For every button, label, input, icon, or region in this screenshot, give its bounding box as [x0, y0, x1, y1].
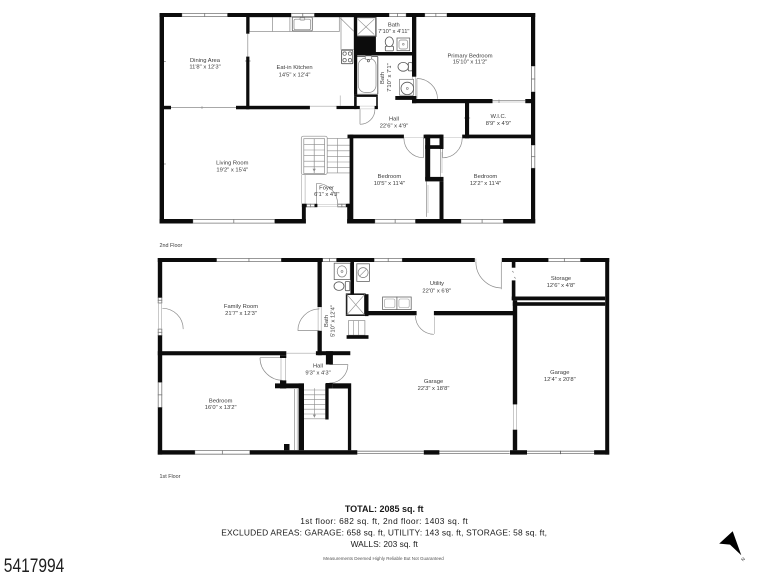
svg-text:Bedroom: Bedroom	[474, 174, 498, 180]
svg-text:Storage: Storage	[551, 276, 571, 282]
svg-text:19'2" x 15'4": 19'2" x 15'4"	[216, 168, 248, 174]
svg-text:Bedroom: Bedroom	[378, 174, 402, 180]
svg-text:TOTAL: 2085 sq. ft: TOTAL: 2085 sq. ft	[345, 504, 424, 514]
svg-text:Primary Bedroom: Primary Bedroom	[447, 53, 492, 59]
svg-text:10'5" x 11'4": 10'5" x 11'4"	[374, 181, 405, 187]
svg-text:12'2" x 11'4": 12'2" x 11'4"	[470, 181, 501, 187]
svg-text:Living Room: Living Room	[216, 160, 248, 166]
svg-text:11'8" x 12'3": 11'8" x 12'3"	[189, 65, 220, 71]
svg-text:5'10" x 12'4": 5'10" x 12'4"	[331, 305, 337, 337]
svg-text:22'3" x 18'8": 22'3" x 18'8"	[418, 386, 450, 392]
svg-text:Eat-in Kitchen: Eat-in Kitchen	[276, 65, 312, 71]
svg-text:6'1" x 4'3": 6'1" x 4'3"	[314, 192, 339, 198]
svg-text:Utility: Utility	[430, 281, 444, 287]
svg-text:7'10" x 7'1": 7'10" x 7'1"	[387, 63, 393, 92]
svg-text:W.I.C.: W.I.C.	[491, 114, 507, 120]
svg-text:Bath: Bath	[324, 315, 330, 327]
svg-text:Foyer: Foyer	[319, 185, 334, 191]
svg-text:22'0" x 6'8": 22'0" x 6'8"	[422, 288, 451, 294]
svg-text:2nd Floor: 2nd Floor	[160, 243, 183, 249]
svg-text:WALLS: 203 sq. ft: WALLS: 203 sq. ft	[351, 539, 419, 549]
svg-text:22'6" x 4'9": 22'6" x 4'9"	[380, 123, 409, 129]
svg-text:Garage: Garage	[550, 370, 569, 376]
svg-text:15'10" x 11'2": 15'10" x 11'2"	[453, 59, 488, 65]
svg-text:EXCLUDED AREAS: GARAGE: 658 sq: EXCLUDED AREAS: GARAGE: 658 sq. ft, UTIL…	[221, 527, 547, 537]
svg-text:12'6" x 4'8": 12'6" x 4'8"	[547, 283, 576, 289]
svg-text:12'4" x 20'8": 12'4" x 20'8"	[544, 377, 576, 383]
svg-text:21'7" x 12'3": 21'7" x 12'3"	[225, 311, 257, 317]
svg-text:16'0" x 13'2": 16'0" x 13'2"	[205, 405, 237, 411]
svg-text:9'3" x 4'3": 9'3" x 4'3"	[305, 371, 330, 377]
svg-text:1st floor: 682 sq. ft, 2nd flo: 1st floor: 682 sq. ft, 2nd floor: 1403 s…	[300, 516, 468, 526]
svg-text:Bath: Bath	[380, 72, 386, 84]
svg-text:5417994: 5417994	[4, 555, 65, 576]
svg-text:14'5" x 12'4": 14'5" x 12'4"	[279, 73, 311, 79]
svg-text:Family Room: Family Room	[224, 304, 258, 310]
svg-text:Dining Area: Dining Area	[190, 58, 221, 64]
svg-text:Bedroom: Bedroom	[209, 398, 233, 404]
svg-text:Hall: Hall	[313, 364, 323, 370]
svg-text:Measurements Deemed Highly Rel: Measurements Deemed Highly Reliable But …	[323, 556, 444, 561]
svg-text:1st Floor: 1st Floor	[160, 474, 181, 480]
svg-text:Bath: Bath	[388, 23, 400, 29]
svg-text:7'10" x 4'11": 7'10" x 4'11"	[378, 29, 409, 35]
svg-text:Hall: Hall	[389, 116, 399, 122]
svg-text:8'9" x 4'9": 8'9" x 4'9"	[486, 121, 511, 127]
svg-text:Garage: Garage	[424, 379, 443, 385]
